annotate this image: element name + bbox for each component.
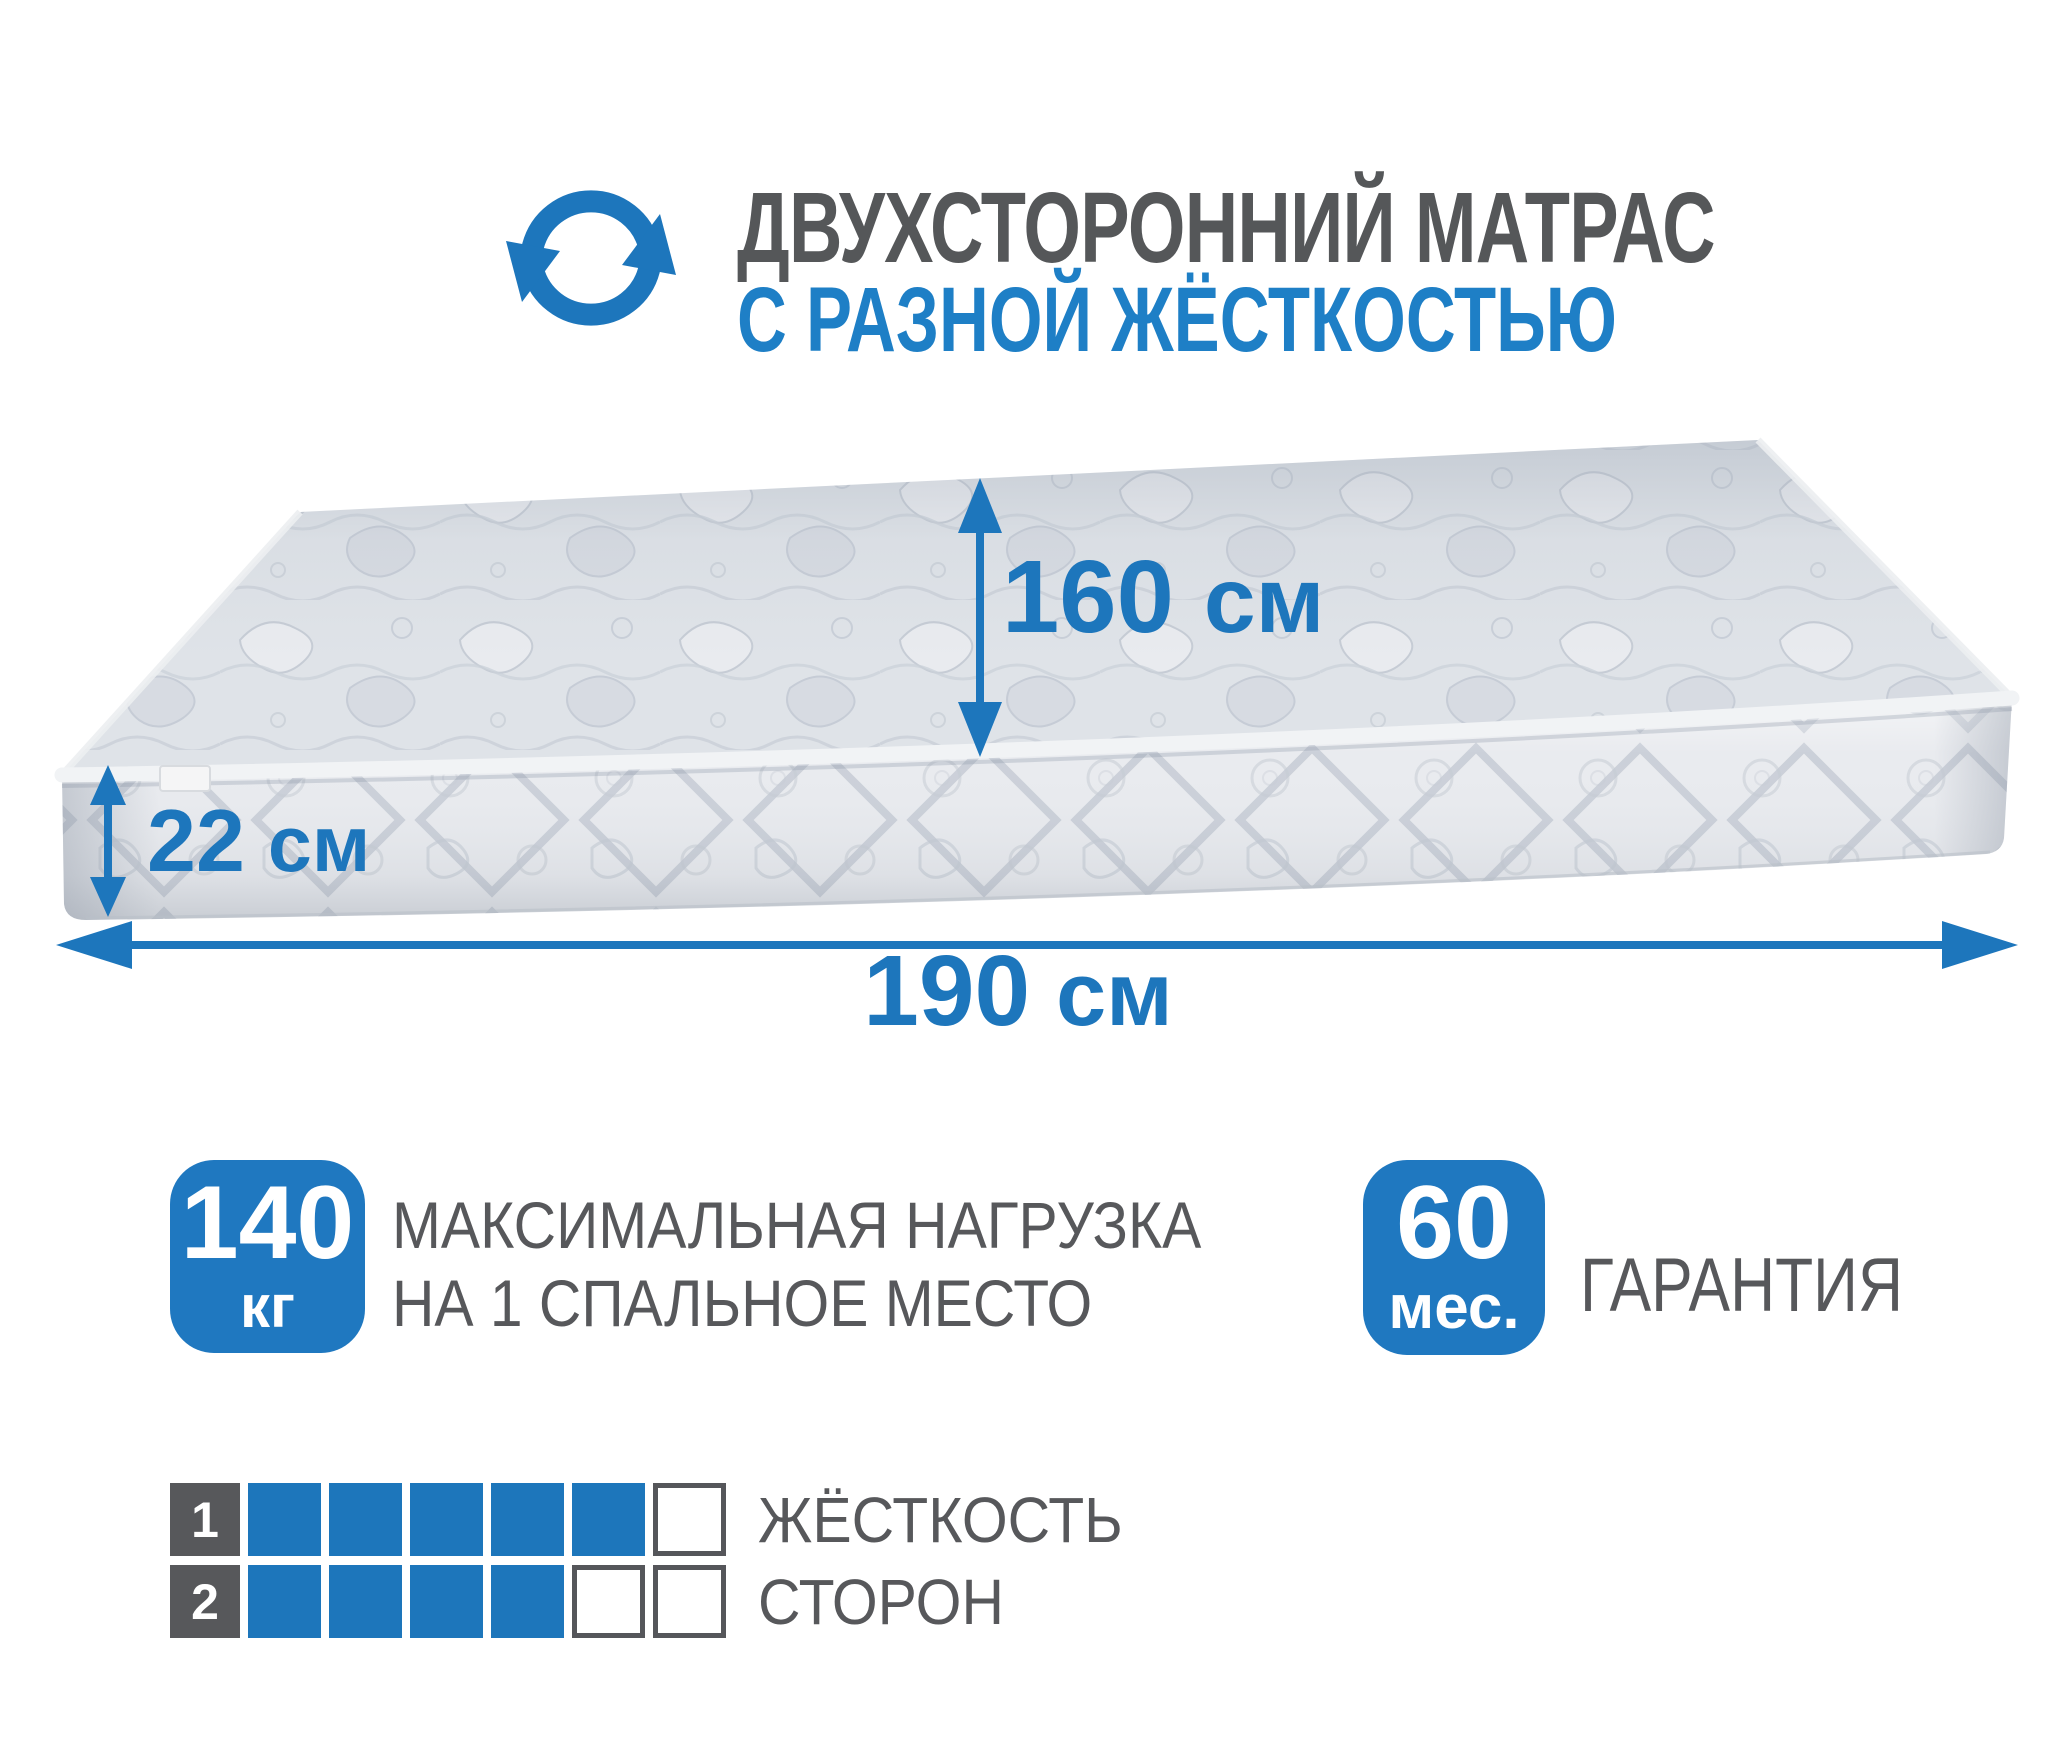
height-value: 22 <box>147 791 245 890</box>
height-unit: см <box>268 799 370 888</box>
max-load-label-line2: НА 1 СПАЛЬНОЕ МЕСТО <box>392 1264 1201 1342</box>
length-unit: см <box>1056 945 1173 1045</box>
height-dimension-label: 22см <box>147 797 370 885</box>
max-load-label-line1: МАКСИМАЛЬНАЯ НАГРУЗКА <box>392 1186 1201 1264</box>
firmness-cell <box>491 1565 564 1638</box>
max-load-unit: кг <box>240 1277 295 1337</box>
height-arrow <box>90 765 126 917</box>
firmness-label-line2: СТОРОН <box>758 1565 1004 1638</box>
warranty-badge: 60 мес. <box>1363 1160 1545 1355</box>
max-load-value: 140 <box>181 1176 355 1272</box>
firmness-cell <box>329 1483 402 1556</box>
length-value: 190 <box>863 935 1030 1047</box>
firmness-cell <box>572 1565 645 1638</box>
page-subtitle: С РАЗНОЙ ЖЁСТКОСТЬЮ <box>737 274 1617 366</box>
warranty-value: 60 <box>1396 1176 1512 1272</box>
firmness-label-line1: ЖЁСТКОСТЬ <box>758 1483 1123 1556</box>
firmness-row-side-1: 1 <box>170 1483 726 1556</box>
page-title: ДВУХСТОРОННИЙ МАТРАС <box>737 178 1715 278</box>
mattress-infographic: ДВУХСТОРОННИЙ МАТРАС С РАЗНОЙ ЖЁСТКОСТЬЮ… <box>0 0 2048 1757</box>
firmness-cell <box>572 1483 645 1556</box>
firmness-cell <box>248 1565 321 1638</box>
max-load-label: МАКСИМАЛЬНАЯ НАГРУЗКА НА 1 СПАЛЬНОЕ МЕСТ… <box>392 1186 1201 1342</box>
warranty-label: ГАРАНТИЯ <box>1580 1248 1903 1324</box>
max-load-badge: 140 кг <box>170 1160 365 1353</box>
depth-dimension-label: 160см <box>1002 545 1324 648</box>
firmness-cell <box>491 1483 564 1556</box>
warranty-unit: мес. <box>1388 1277 1519 1339</box>
firmness-cell <box>410 1483 483 1556</box>
firmness-cell <box>329 1565 402 1638</box>
depth-value: 160 <box>1002 539 1174 654</box>
firmness-cell <box>248 1483 321 1556</box>
firmness-cell <box>653 1565 726 1638</box>
rotate-arrows-icon <box>506 201 676 314</box>
firmness-cell <box>410 1565 483 1638</box>
depth-unit: см <box>1204 548 1325 652</box>
mattress-tag <box>160 766 210 791</box>
firmness-row-side-2: 2 <box>170 1565 726 1638</box>
firmness-cell <box>653 1483 726 1556</box>
firmness-side-number: 1 <box>170 1483 240 1556</box>
length-dimension-label: 190см <box>718 941 1318 1041</box>
depth-arrow <box>958 478 1002 757</box>
firmness-side-number: 2 <box>170 1565 240 1638</box>
